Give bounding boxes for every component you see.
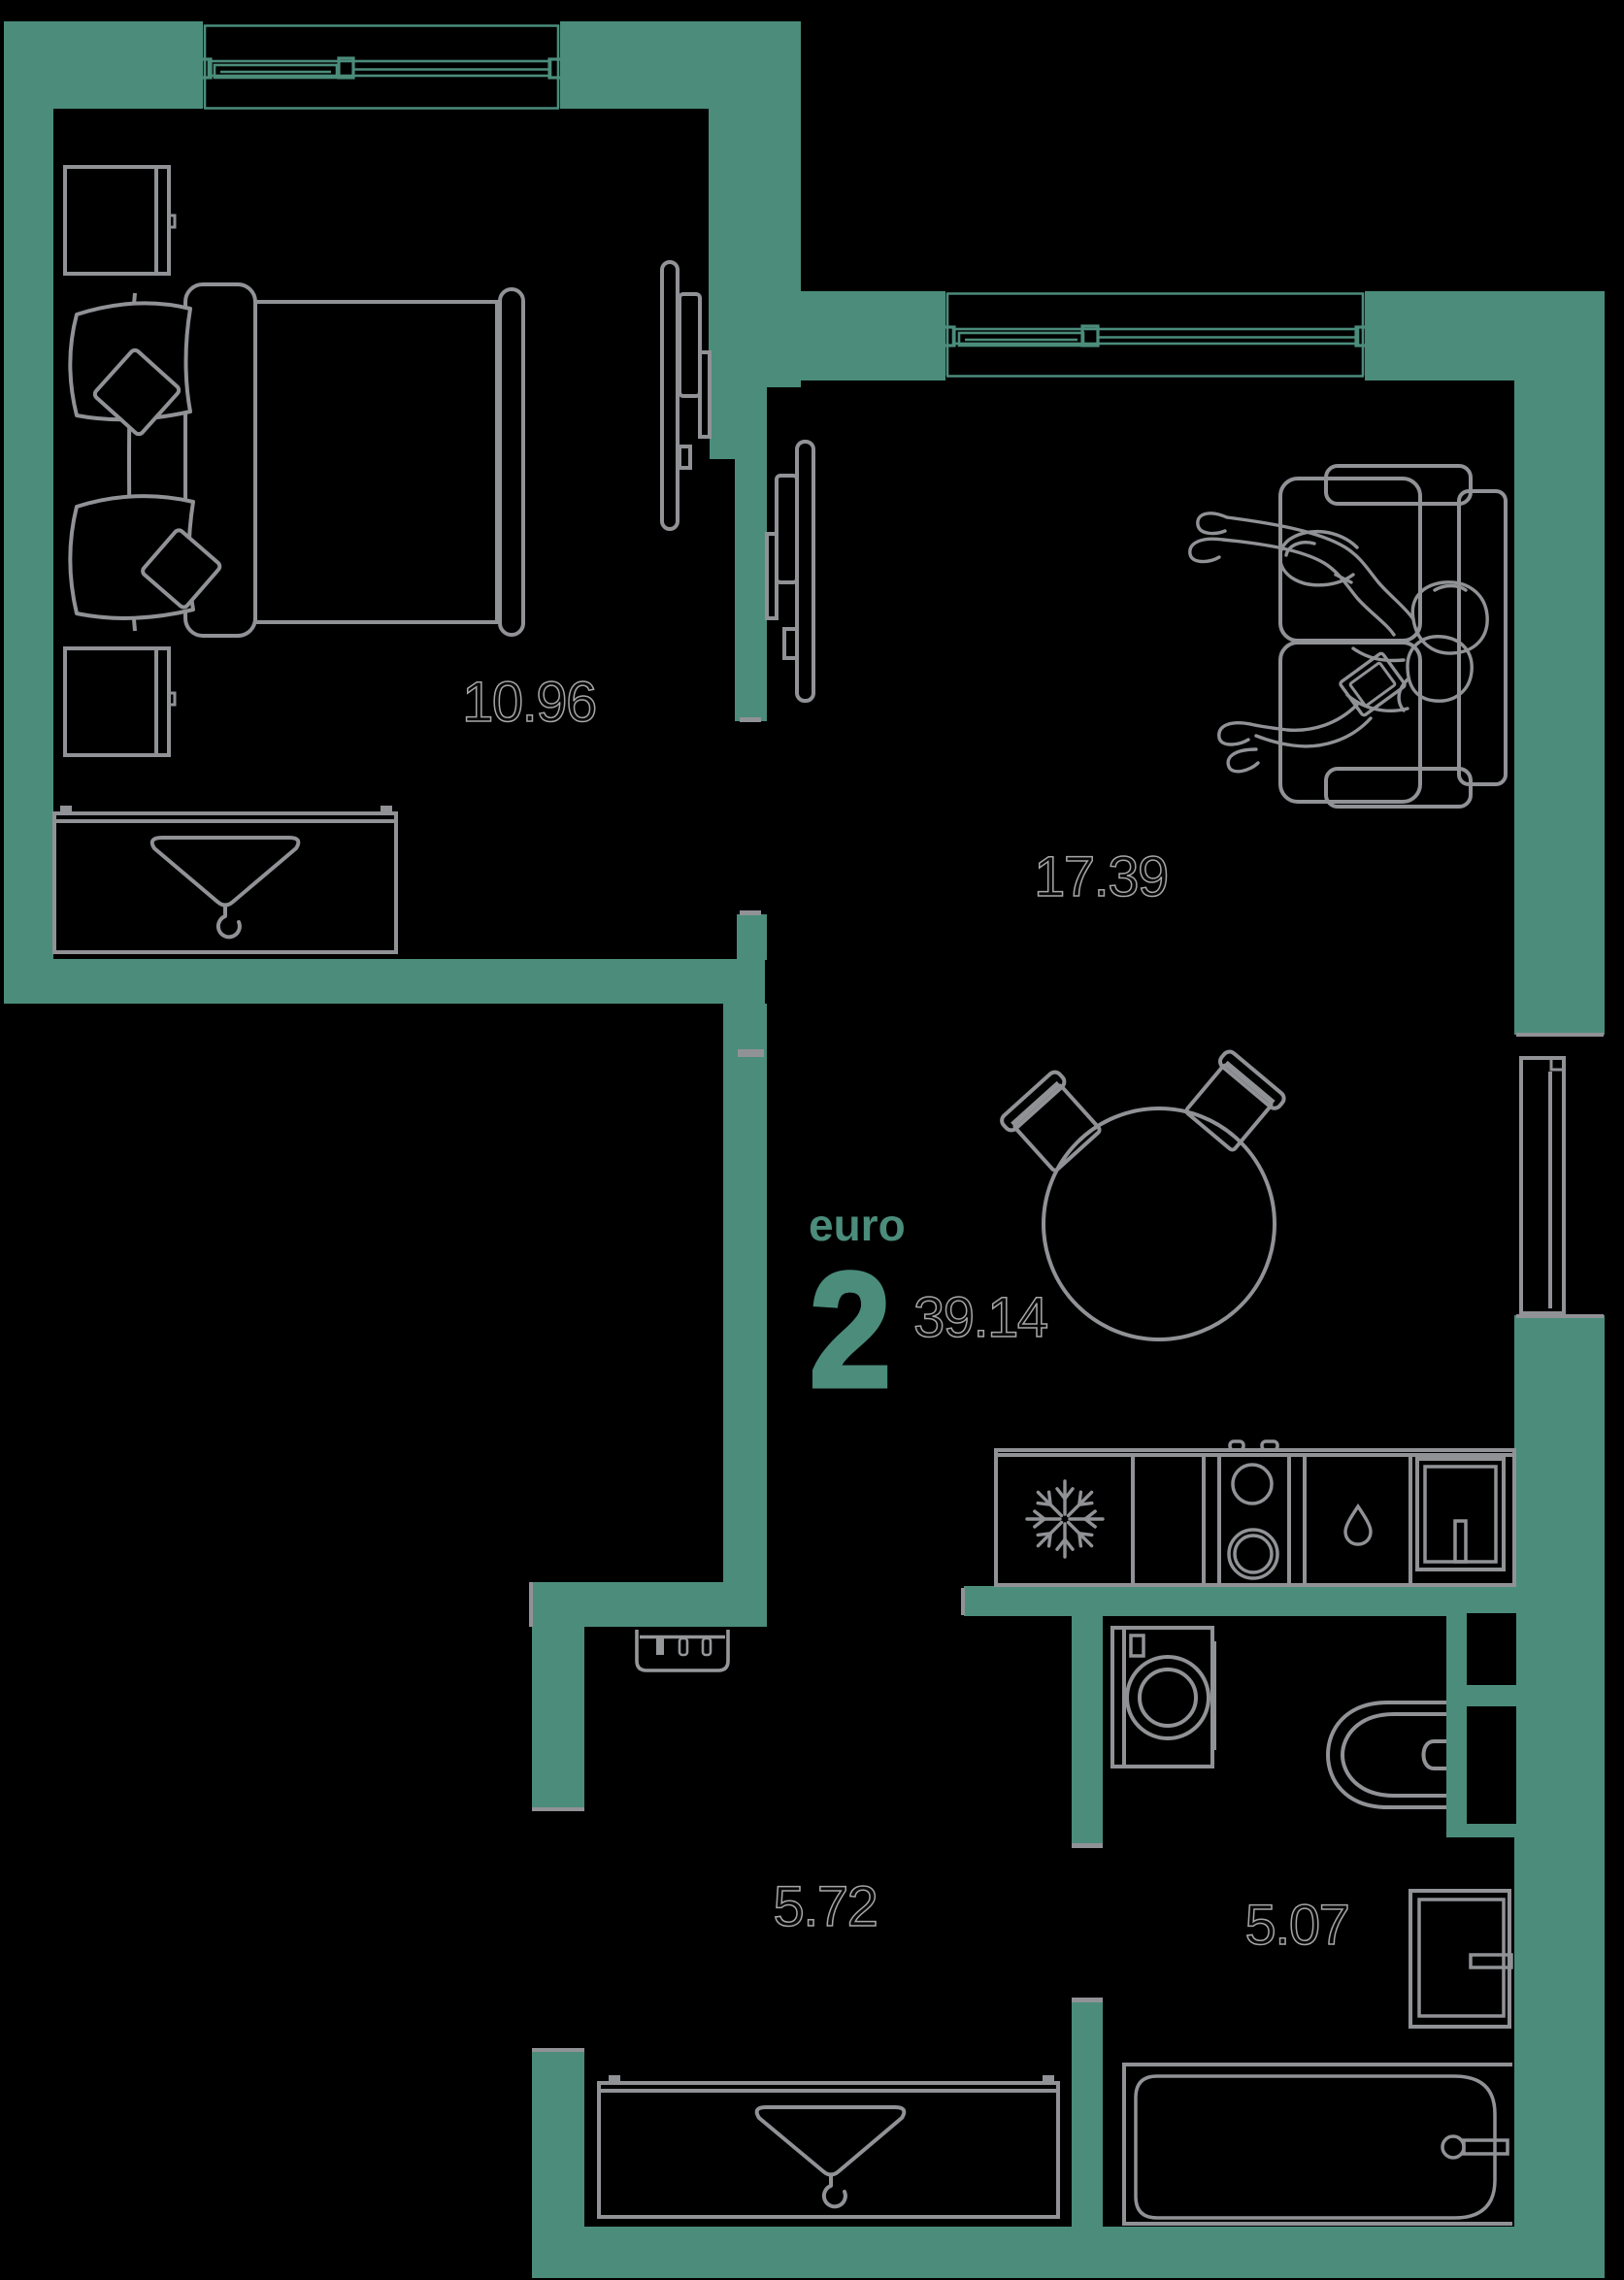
svg-text:5.07: 5.07: [1245, 1894, 1349, 1957]
svg-text:39.14: 39.14: [913, 1286, 1047, 1349]
svg-text:2: 2: [810, 1239, 891, 1421]
svg-text:10.96: 10.96: [462, 671, 596, 734]
svg-text:5.72: 5.72: [774, 1875, 878, 1938]
svg-text:17.39: 17.39: [1034, 845, 1168, 909]
